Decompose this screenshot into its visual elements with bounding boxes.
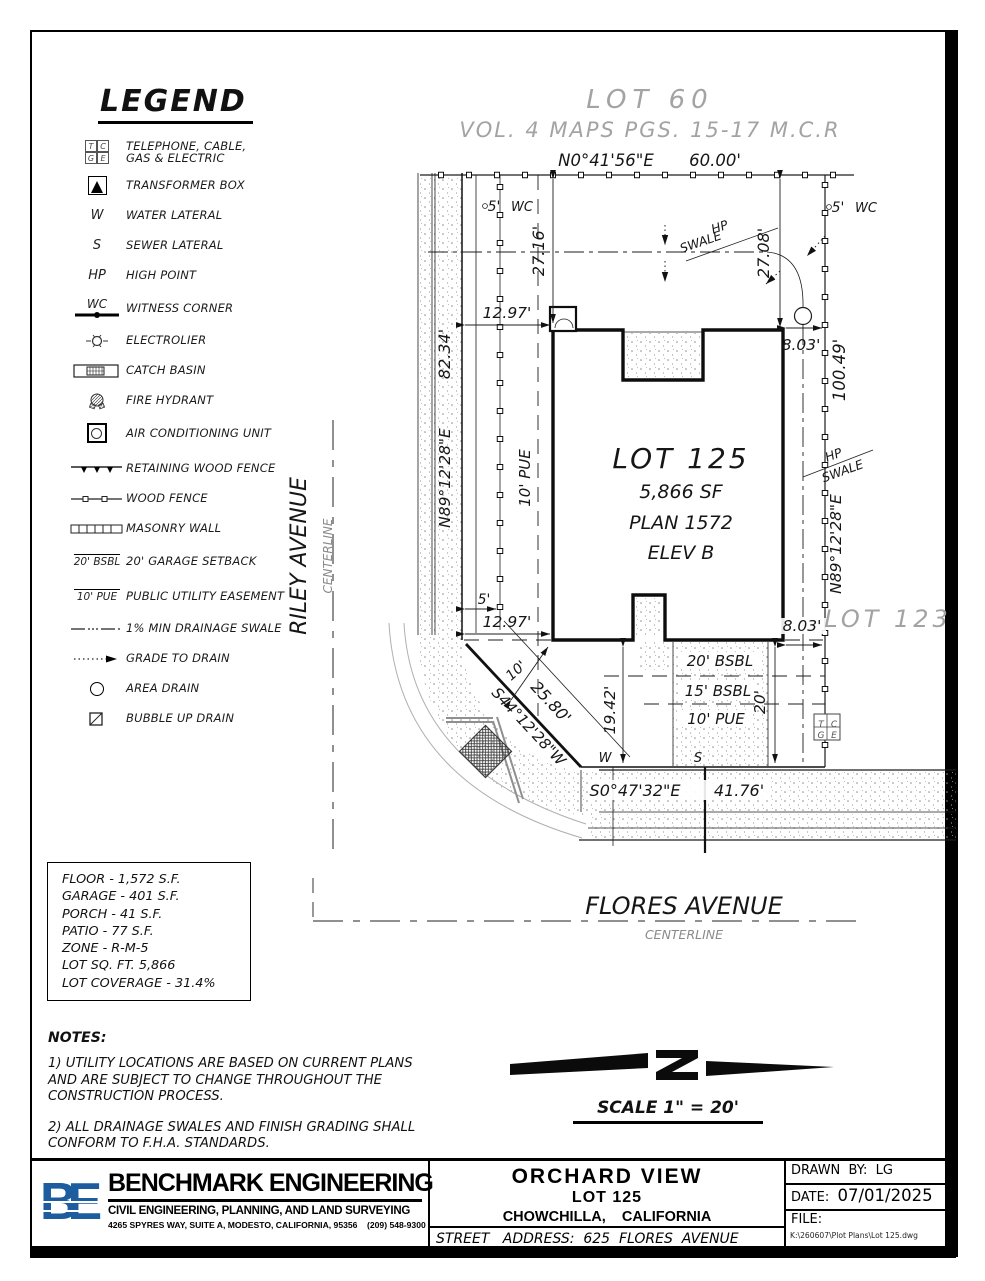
lot123-label: LOT 123 <box>824 605 952 633</box>
south-length: 41.76' <box>714 781 764 800</box>
project-name: ORCHARD VIEW <box>430 1165 784 1189</box>
legend-item-bubble-drain: BUBBLE UP DRAIN <box>68 706 318 731</box>
plot-plan-sheet: LEGEND TCGE TELEPHONE, CABLE,GAS & ELECT… <box>0 0 985 1281</box>
stat-zone: ZONE - R-M-5 <box>62 940 250 957</box>
pue-10-west-label: 10' PUE <box>516 449 534 507</box>
witness-corner-icon: WC <box>73 297 121 319</box>
bsbl-20-label: 20' BSBL <box>687 652 753 670</box>
legend-item-telephone: TCGE TELEPHONE, CABLE,GAS & ELECTRIC <box>68 136 318 168</box>
wc-label-right: WC <box>855 201 878 216</box>
drawing-info-block: DRAWN BY: LG DATE: 07/01/2025 FILE: K:\2… <box>786 1161 946 1249</box>
notes-section: NOTES: 1) UTILITY LOCATIONS ARE BASED ON… <box>48 1030 428 1167</box>
sewer-marker: S <box>694 751 702 766</box>
north-arrow-scale: SCALE 1" = 20' <box>498 1042 838 1124</box>
company-block: BE BENCHMARK ENGINEERING CIVIL ENGINEERI… <box>32 1161 428 1249</box>
bearing-west: N89°12'28"E <box>436 428 454 528</box>
masonry-wall-icon <box>70 522 124 536</box>
electrolier-icon <box>74 331 120 351</box>
dim-12-97-top: 12.97' <box>483 304 532 322</box>
bsbl-15-label: 15' BSBL <box>685 682 751 700</box>
company-name: BENCHMARK ENGINEERING <box>108 1169 422 1202</box>
south-bearing: S0°47'32"E <box>590 781 682 800</box>
legend-item-garage-setback: 20' BSBL 20' GARAGE SETBACK <box>68 546 318 576</box>
riley-avenue-label: RILEY AVENUE <box>288 477 312 635</box>
map-reference: VOL. 4 MAPS PGS. 15-17 M.C.R <box>459 118 840 142</box>
note-1: 1) UTILITY LOCATIONS ARE BASED ON CURREN… <box>48 1056 428 1106</box>
dim-27-16: 27.16' <box>529 226 548 276</box>
area-drain-icon <box>90 682 104 696</box>
area-drain-symbol <box>795 308 812 325</box>
hp-label-east: HP <box>823 445 844 465</box>
tcge-e: E <box>831 731 837 741</box>
stat-coverage: LOT COVERAGE - 31.4% <box>62 975 250 992</box>
scale-label: SCALE 1" = 20' <box>573 1098 763 1124</box>
stat-floor: FLOOR - 1,572 S.F. <box>62 871 250 888</box>
wc-offset-right: 5' <box>832 200 845 216</box>
riley-centerline-label: CENTERLINE <box>321 518 335 593</box>
legend-item-area-drain: AREA DRAIN <box>68 676 318 701</box>
legend-item-water: W WATER LATERAL <box>68 203 318 228</box>
wood-fence-icon <box>70 493 124 505</box>
pue-10-icon: 10' PUE <box>68 589 126 603</box>
retaining-wood-fence-icon <box>70 462 124 476</box>
dim-12-97-bottom: 12.97' <box>483 613 532 631</box>
lot125-elev: ELEV B <box>648 542 715 564</box>
project-lot: LOT 125 <box>430 1189 784 1207</box>
lot125-area: 5,866 SF <box>639 481 723 503</box>
legend-title: LEGEND <box>98 84 253 124</box>
tcge-g: G <box>818 731 825 741</box>
file-path: K:\260607\Plot Plans\Lot 125.dwg <box>786 1227 946 1240</box>
flores-avenue-label: FLORES AVENUE <box>585 892 783 920</box>
bearing-east: N89°12'28"E <box>827 494 845 594</box>
company-tagline: CIVIL ENGINEERING, PLANNING, AND LAND SU… <box>108 1205 422 1217</box>
legend: LEGEND TCGE TELEPHONE, CABLE,GAS & ELECT… <box>68 84 318 736</box>
dim-19-42: 19.42' <box>601 686 619 735</box>
dim-20: 20' <box>751 690 769 714</box>
dim-82-34: 82.34' <box>435 329 454 379</box>
note-2: 2) ALL DRAINAGE SWALES AND FINISH GRADIN… <box>48 1120 428 1153</box>
north-arrow-icon <box>498 1042 838 1084</box>
legend-item-swale: 1% MIN DRAINAGE SWALE <box>68 616 318 641</box>
project-block: ORCHARD VIEW LOT 125 CHOWCHILLA, CALIFOR… <box>428 1161 786 1249</box>
bubble-up-drain-icon <box>87 711 107 727</box>
lot125-plan: PLAN 1572 <box>629 512 733 534</box>
dim-27-08: 27.08' <box>754 228 773 278</box>
pue-10-drive-label: 10' PUE <box>687 710 745 728</box>
date-row: DATE: 07/01/2025 <box>786 1185 946 1211</box>
company-logo: BE <box>40 1173 104 1235</box>
north-length: 60.00' <box>689 151 741 170</box>
catch-basin-icon <box>72 362 122 380</box>
stat-patio: PATIO - 77 S.F. <box>62 923 250 940</box>
high-point-icon: HP <box>68 268 126 283</box>
legend-item-transformer: TRANSFORMER BOX <box>68 173 318 198</box>
file-row: FILE: <box>786 1211 946 1227</box>
tc-ge-icon: TCGE <box>85 140 109 164</box>
drainage-swale-icon <box>70 624 124 634</box>
title-block: BE BENCHMARK ENGINEERING CIVIL ENGINEERI… <box>32 1158 946 1249</box>
legend-item-retaining-fence: RETAINING WOOD FENCE <box>68 456 318 481</box>
legend-item-catch-basin: CATCH BASIN <box>68 358 318 383</box>
ac-unit-icon <box>87 423 107 443</box>
legend-item-ac-unit: AIR CONDITIONING UNIT <box>68 418 318 448</box>
tcge-c: C <box>831 720 838 730</box>
legend-item-grade-to-drain: GRADE TO DRAIN <box>68 646 318 671</box>
stat-garage: GARAGE - 401 S.F. <box>62 888 250 905</box>
legend-item-masonry: MASONRY WALL <box>68 516 318 541</box>
patio-area <box>626 333 700 377</box>
company-address: 4265 SPYRES WAY, SUITE A, MODESTO, CALIF… <box>108 1220 422 1230</box>
area-summary-box: FLOOR - 1,572 S.F. GARAGE - 401 S.F. POR… <box>47 862 251 1001</box>
legend-item-wood-fence: WOOD FENCE <box>68 486 318 511</box>
north-bearing: N0°41'56"E <box>558 151 654 170</box>
bsbl-20-icon: 20' BSBL <box>68 554 126 568</box>
transformer-box-icon <box>88 176 107 195</box>
legend-item-highpoint: HP HIGH POINT <box>68 263 318 288</box>
dim-8-03-top: 8.03' <box>782 336 821 354</box>
porch-area <box>635 598 663 637</box>
sewer-lateral-icon: S <box>68 238 126 253</box>
water-lateral-icon: W <box>68 208 126 223</box>
dim-8-03-bottom: 8.03' <box>783 617 822 635</box>
legend-item-electrolier: ELECTROLIER <box>68 328 318 353</box>
legend-item-sewer: S SEWER LATERAL <box>68 233 318 258</box>
wc-label-left: WC <box>511 200 534 215</box>
lot60-label: LOT 60 <box>586 85 713 115</box>
drawn-by-row: DRAWN BY: LG <box>786 1161 946 1185</box>
legend-item-fire-hydrant: FIRE HYDRANT <box>68 388 318 413</box>
fire-hydrant-icon <box>74 391 120 411</box>
street-address: STREET ADDRESS: 625 FLORES AVENUE <box>430 1226 784 1249</box>
water-marker: W <box>599 751 613 766</box>
lot125-title: LOT 125 <box>612 442 749 475</box>
notes-title: NOTES: <box>48 1030 428 1046</box>
legend-item-witness-corner: WC WITNESS CORNER <box>68 293 318 323</box>
project-city: CHOWCHILLA, CALIFORNIA <box>430 1209 784 1225</box>
wc-offset-left: 5' <box>488 199 501 215</box>
site-plan-drawing: LOT 60 VOL. 4 MAPS PGS. 15-17 M.C.R N0°4… <box>288 78 956 966</box>
flores-centerline-label: CENTERLINE <box>645 927 723 942</box>
dim-10-diagonal: 10' <box>503 658 530 684</box>
grade-to-drain-icon <box>70 653 124 665</box>
stat-porch: PORCH - 41 S.F. <box>62 906 250 923</box>
porch-step <box>640 642 670 670</box>
dim-100-49: 100.49' <box>830 339 849 401</box>
legend-item-pue: 10' PUE PUBLIC UTILITY EASEMENT <box>68 581 318 611</box>
dim-5-bottom: 5' <box>478 592 491 608</box>
stat-lot-sqft: LOT SQ. FT. 5,866 <box>62 957 250 974</box>
